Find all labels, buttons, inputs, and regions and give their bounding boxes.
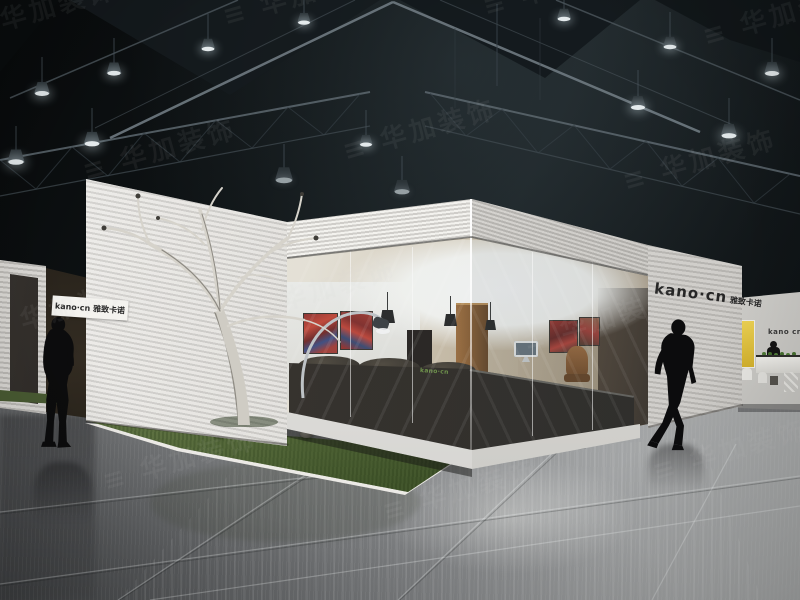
vignette-overlay bbox=[0, 0, 800, 600]
exhibition-hall-scene: kano cn bbox=[0, 0, 800, 600]
